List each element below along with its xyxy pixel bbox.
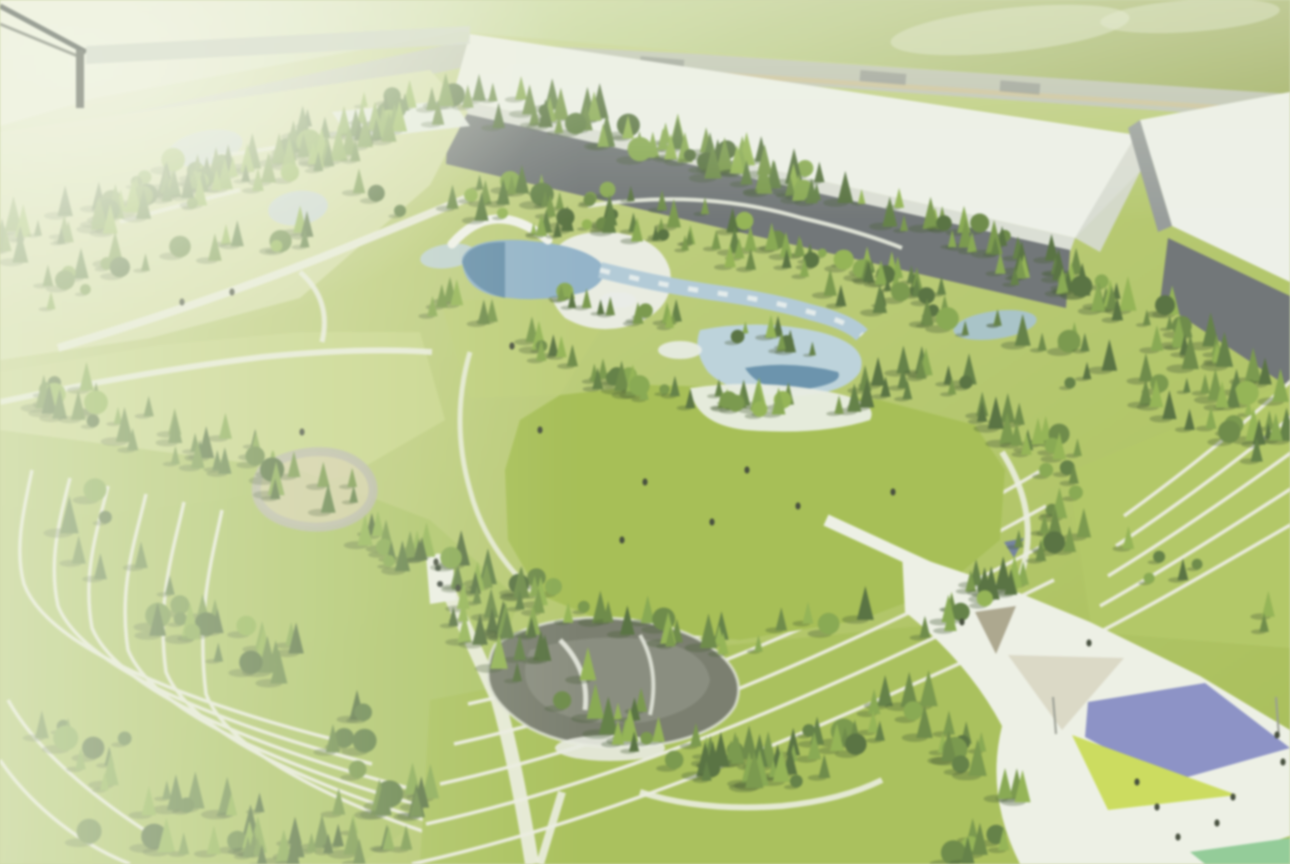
haze-veil	[0, 0, 1290, 864]
park-rendering-stage	[0, 0, 1290, 864]
park-aerial-rendering	[0, 0, 1290, 864]
haze-overlay	[0, 0, 1290, 864]
post	[76, 50, 84, 108]
